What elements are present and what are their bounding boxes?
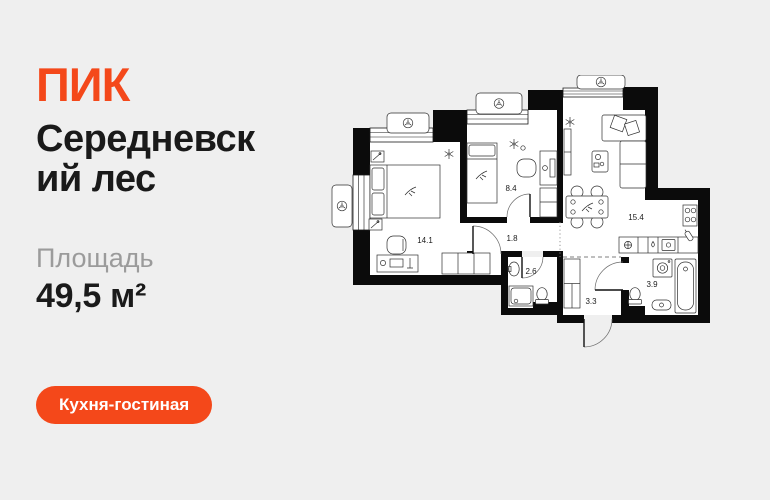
bathtub-icon — [675, 259, 696, 313]
floorplan-svg: 14.1 8.4 1.8 15.4 2.6 3.3 3.9 — [330, 75, 720, 353]
ac-unit-icon — [387, 113, 429, 133]
kitchen-living-tag[interactable]: Кухня-гостиная — [36, 386, 212, 424]
desk-icon — [377, 255, 418, 272]
project-title: Середневск ий лес — [36, 119, 255, 199]
side-table-icon — [592, 151, 608, 172]
project-title-line1: Середневск — [36, 119, 255, 159]
room-area-label: 3.3 — [585, 297, 597, 306]
sconce-icon — [369, 219, 382, 230]
entrance-door-icon — [584, 319, 612, 347]
room-area-label: 8.4 — [505, 184, 517, 193]
listing-card: ПИК Середневск ий лес Площадь 49,5 м² Ку… — [0, 0, 770, 500]
room-area-label: 3.9 — [646, 280, 658, 289]
project-title-line2: ий лес — [36, 159, 255, 199]
floorplan: 14.1 8.4 1.8 15.4 2.6 3.3 3.9 — [330, 75, 720, 353]
shelving-icon — [540, 188, 557, 217]
pik-logo: ПИК — [36, 60, 129, 109]
kitchen-counter-icon — [619, 237, 698, 253]
shower-icon — [509, 286, 533, 306]
washing-machine-icon — [653, 259, 672, 277]
ac-unit-icon — [577, 75, 625, 89]
ac-unit-icon — [332, 185, 352, 227]
room-area-label: 14.1 — [417, 236, 433, 245]
sink-icon — [652, 300, 671, 310]
cabinet-icon — [564, 259, 580, 308]
entry-hall-fixtures — [564, 259, 580, 308]
chair-icon — [517, 159, 536, 177]
single-bed-icon — [467, 143, 497, 203]
cabinet-icon — [564, 129, 571, 175]
area-value: 49,5 м² — [36, 277, 146, 316]
room-area-label: 15.4 — [628, 213, 644, 222]
room-area-label: 2.6 — [525, 267, 537, 276]
area-label: Площадь — [36, 243, 154, 274]
room-area-label: 1.8 — [506, 234, 518, 243]
ac-unit-icon — [476, 93, 522, 114]
desk-icon — [540, 151, 557, 185]
wardrobe-icon — [442, 253, 490, 274]
window-icon — [353, 175, 370, 230]
double-bed-icon — [370, 165, 440, 218]
stove-icon — [683, 205, 697, 226]
sconce-icon — [371, 151, 384, 162]
chair-icon — [387, 236, 406, 254]
